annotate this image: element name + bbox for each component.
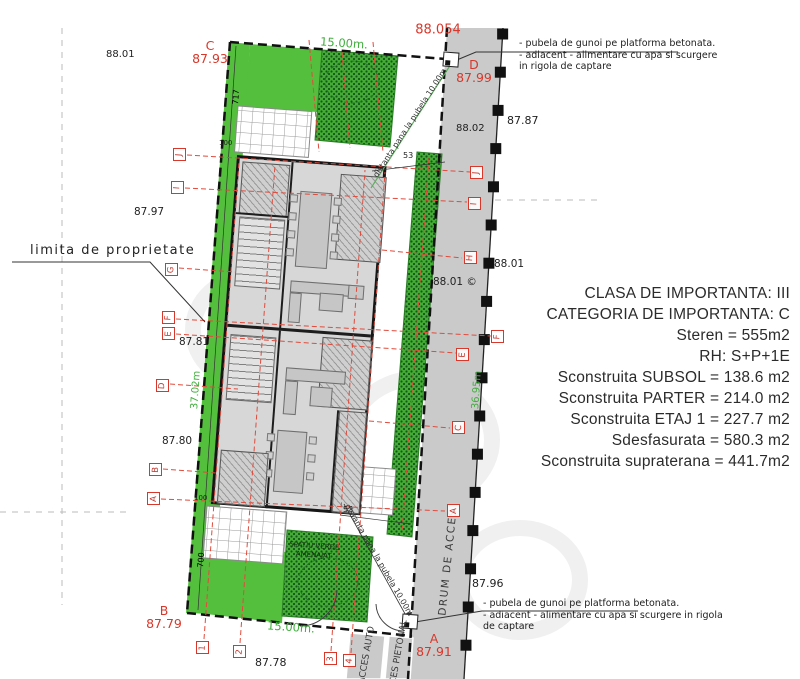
info-line-parter: Sconstruita PARTER = 214.0 m2: [541, 388, 790, 409]
axis-marker-bottom-4: 4: [343, 654, 356, 667]
axis-marker-right-F: F: [491, 330, 504, 343]
dimension-53-top: 53: [403, 151, 413, 160]
note-top-line1: - pubela de gunoi pe platforma betonata.: [519, 38, 717, 50]
elevation-8778: 87.78: [255, 656, 287, 669]
axis-marker-right-C: C: [452, 421, 465, 434]
note-bottom: - pubela de gunoi pe platforma betonata.…: [483, 598, 723, 633]
elevation-red-88054: 88.054: [415, 23, 461, 38]
corner-marker-A: A87.91: [416, 632, 452, 658]
axis-marker-bottom-2: 2: [233, 645, 246, 658]
note-bottom-line3: de captare: [483, 621, 723, 633]
corner-marker-B: B87.79: [146, 604, 182, 630]
axis-marker-right-I: I: [468, 197, 481, 210]
axis-marker-left-G: G: [165, 263, 178, 276]
note-top-line2: - adiacent - alimentare cu apa si scurge…: [519, 50, 717, 62]
axis-marker-left-B: B: [149, 463, 162, 476]
elevation-right-mid: 88.01: [494, 258, 524, 270]
info-line-etaj: Sconstruita ETAJ 1 = 227.7 m2: [541, 409, 790, 430]
info-line-desfasurata: Sdesfasurata = 580.3 m2: [541, 430, 790, 451]
dimension-100-top: 100: [219, 139, 232, 147]
note-top: - pubela de gunoi pe platforma betonata.…: [519, 38, 717, 73]
info-line-subsol: Sconstruita SUBSOL = 138.6 m2: [541, 367, 790, 388]
elevation-8781: 87.81: [179, 336, 209, 348]
info-line-categoria: CATEGORIA DE IMPORTANTA: C: [541, 304, 790, 325]
elevation-right-top: 87.87: [507, 114, 539, 127]
axis-marker-left-E: E: [162, 327, 175, 340]
site-plan-canvas: J I G F E D B A J I H F E C A 1 2 3 4 88…: [0, 0, 800, 679]
info-line-steren: Steren = 555m2: [541, 325, 790, 346]
axis-marker-left-F: F: [162, 311, 175, 324]
dimension-100-bottom: 100: [194, 494, 207, 502]
gate-arcs: [300, 590, 404, 631]
elevation-road-top: 88.02: [456, 123, 485, 134]
green-space-label: SPATIU VERDE AMENAJAT: [288, 540, 339, 561]
axis-marker-right-J: J: [470, 166, 483, 179]
axis-marker-right-A: A: [447, 504, 460, 517]
elevation-8780: 87.80: [162, 435, 192, 447]
axis-marker-bottom-1: 1: [196, 641, 209, 654]
corner-marker-C: C87.93: [192, 39, 228, 65]
elevation-left-mid: 87.97: [134, 206, 164, 218]
building-data-block: CLASA DE IMPORTANTA: III CATEGORIA DE IM…: [541, 283, 790, 472]
elevation-8796: 87.96: [472, 577, 504, 590]
axis-marker-right-E: E: [456, 348, 469, 361]
axis-marker-left-J: J: [173, 148, 186, 161]
dimension-700: 700: [196, 552, 206, 568]
elevation-label: 88.01: [106, 49, 135, 60]
axis-marker-bottom-3: 3: [324, 652, 337, 665]
info-line-supraterana: Sconstruita supraterana = 441.7m2: [541, 451, 790, 472]
axis-marker-left-A: A: [147, 492, 160, 505]
dimension-717: 717: [231, 89, 241, 105]
elevation-road-mid: 88.01 ©: [433, 276, 477, 288]
corner-marker-D: D87.99: [456, 58, 492, 84]
axis-marker-left-I: I: [171, 181, 184, 194]
property-limit-label: limita de proprietate: [30, 243, 195, 258]
note-bottom-line2: - adiacent - alimentare cu apa si scurge…: [483, 610, 723, 622]
note-top-line3: in rigola de captare: [519, 61, 717, 73]
note-bottom-line1: - pubela de gunoi pe platforma betonata.: [483, 598, 723, 610]
info-line-clasa: CLASA DE IMPORTANTA: III: [541, 283, 790, 304]
axis-marker-right-H: H: [464, 251, 477, 264]
axis-marker-left-D: D: [156, 379, 169, 392]
info-line-rh: RH: S+P+1E: [541, 346, 790, 367]
